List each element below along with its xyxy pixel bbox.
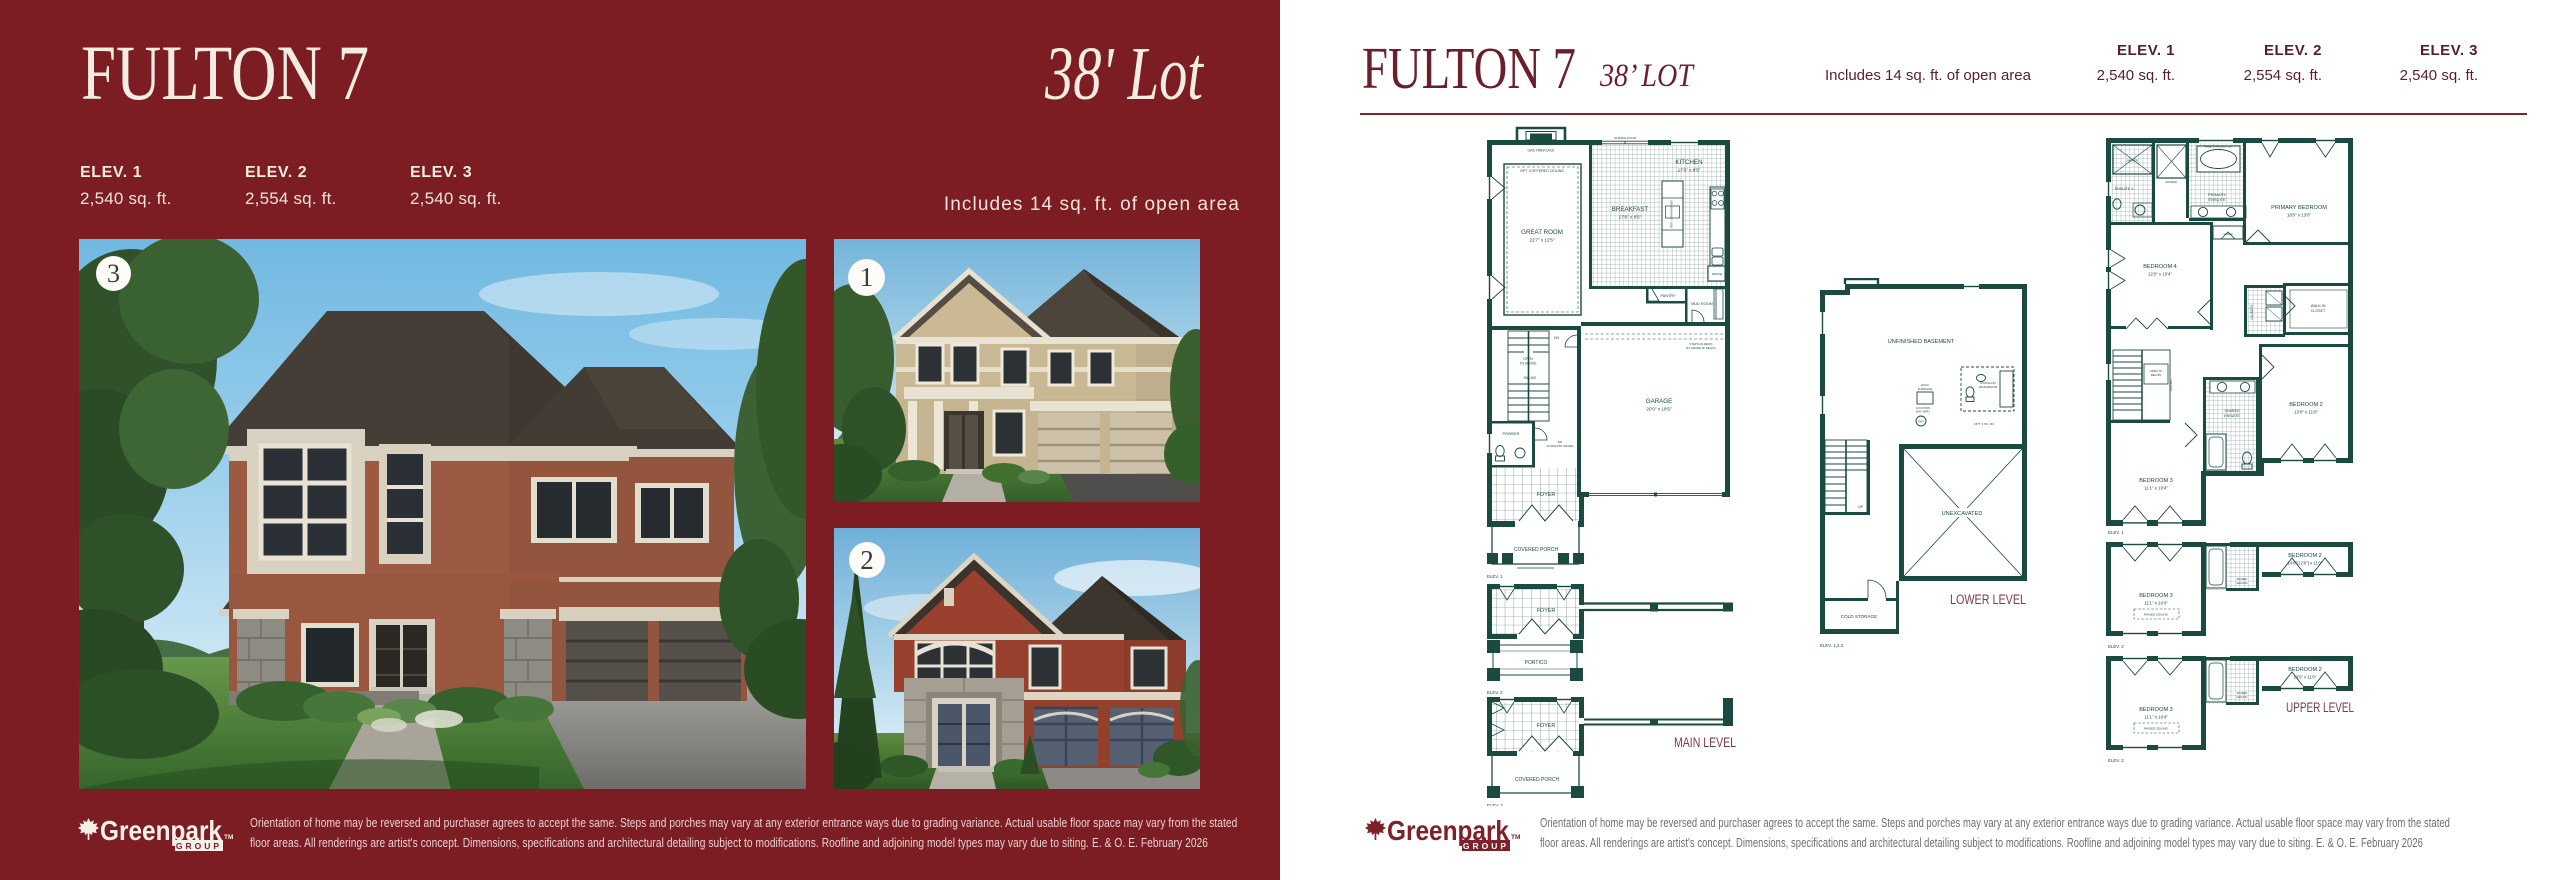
svg-text:MAIN LEVEL: MAIN LEVEL (1674, 735, 1736, 750)
svg-text:COVERED PORCH: COVERED PORCH (1515, 777, 1560, 783)
svg-text:38' Lot: 38' Lot (1044, 32, 1204, 110)
svg-text:DN: DN (1558, 440, 1562, 444)
svg-text:COVERED PORCH: COVERED PORCH (1514, 547, 1559, 553)
svg-text:FOYER: FOYER (1537, 492, 1556, 498)
svg-text:WALK-IN: WALK-IN (2311, 304, 2326, 308)
svg-text:OPEN: OPEN (1523, 357, 1533, 361)
svg-text:DN: DN (1554, 336, 1559, 340)
svg-text:UP: UP (1858, 505, 1864, 509)
svg-text:FULTON 7: FULTON 7 (81, 30, 369, 110)
svg-text:TM: TM (224, 834, 233, 841)
svg-text:17'6" x 8'5": 17'6" x 8'5" (1678, 168, 1701, 173)
svg-text:GROUP: GROUP (1463, 841, 1509, 851)
svg-text:GAS FIREPLACE: GAS FIREPLACE (1528, 149, 1556, 153)
svg-text:13'0" x 11'0": 13'0" x 11'0" (2294, 675, 2317, 680)
svg-text:BREAKFAST: BREAKFAST (1612, 206, 1649, 213)
svg-text:BY GRADE (IF REQ'D): BY GRADE (IF REQ'D) (1687, 346, 1716, 350)
svg-text:HWT: HWT (1918, 420, 1925, 424)
svg-text:UPPER LEVEL: UPPER LEVEL (2286, 700, 2354, 715)
svg-text:ENSUITE 4: ENSUITE 4 (2115, 187, 2134, 191)
svg-text:BEDROOM 4: BEDROOM 4 (2143, 264, 2177, 270)
svg-text:UNFINISHED BASEMENT: UNFINISHED BASEMENT (1888, 339, 1955, 345)
svg-text:ELEV. 1: ELEV. 1 (1487, 574, 1503, 579)
svg-text:TO ABOVE: TO ABOVE (1519, 362, 1537, 366)
svg-text:FURNACE: FURNACE (1918, 387, 1933, 391)
svg-text:BEDROOM 3: BEDROOM 3 (2139, 707, 2173, 713)
svg-text:11'1" x 10'4": 11'1" x 10'4" (2144, 715, 2168, 720)
svg-text:BEDROOM 2: BEDROOM 2 (2288, 667, 2322, 673)
svg-text:KITCHEN: KITCHEN (1675, 159, 1702, 166)
svg-text:38’ LOT: 38’ LOT (1599, 58, 1695, 92)
svg-text:MUD ROOM: MUD ROOM (1691, 302, 1713, 306)
svg-text:REF. | DISHWASHER: REF. | DISHWASHER (1670, 200, 1674, 227)
svg-text:CEILING: CEILING (2236, 695, 2247, 699)
svg-text:ELEV. 2: ELEV. 2 (2108, 644, 2124, 649)
svg-text:RAILING: RAILING (1524, 376, 1537, 380)
svg-text:GARAGE: GARAGE (1646, 398, 1672, 405)
svg-text:ELEV. 1: ELEV. 1 (2108, 530, 2124, 535)
svg-text:11'1" x 10'4": 11'1" x 10'4" (2144, 486, 2168, 491)
svg-text:13'0" x 11'0": 13'0" x 11'0" (2294, 410, 2318, 415)
svg-text:BEDROOM 3: BEDROOM 3 (2139, 478, 2173, 484)
svg-text:22'7" x 12'5": 22'7" x 12'5" (1529, 238, 1555, 243)
svg-text:TM: TM (1511, 834, 1520, 841)
svg-text:MAY VARY: MAY VARY (1916, 410, 1930, 414)
svg-text:RAILING: RAILING (2169, 379, 2173, 390)
svg-text:17'6" x 8'5": 17'6" x 8'5" (1619, 215, 1642, 220)
svg-text:CEILING: CEILING (2236, 581, 2247, 585)
svg-text:ELEV. 3: ELEV. 3 (1487, 803, 1503, 806)
svg-text:PANTRY: PANTRY (1660, 294, 1676, 298)
svg-text:FULTON 7: FULTON 7 (1362, 40, 1576, 100)
svg-text:LOWER LEVEL: LOWER LEVEL (1950, 592, 2026, 607)
svg-text:SHOWER: SHOWER (2165, 180, 2177, 184)
svg-text:FRIDGE: FRIDGE (1712, 272, 1723, 276)
svg-text:BEDROOM 2: BEDROOM 2 (2289, 402, 2323, 408)
svg-text:PRIMARY BEDROOM: PRIMARY BEDROOM (2271, 205, 2327, 211)
svg-text:POWDER: POWDER (1502, 432, 1519, 436)
svg-text:GROUP: GROUP (176, 841, 222, 851)
svg-text:CLOSET: CLOSET (2311, 309, 2326, 313)
svg-text:GREAT ROOM: GREAT ROOM (1521, 229, 1563, 236)
svg-text:14'8"(12'0") x 11'0": 14'8"(12'0") x 11'0" (2288, 561, 2323, 566)
svg-text:BEDROOM 3: BEDROOM 3 (2139, 593, 2173, 599)
svg-text:ELEV. 2: ELEV. 2 (1487, 690, 1503, 695)
svg-text:FOYER: FOYER (1537, 608, 1556, 614)
svg-text:11'1" x 10'4": 11'1" x 10'4" (2144, 601, 2168, 606)
svg-text:ELEV. 3: ELEV. 3 (2108, 758, 2124, 763)
svg-text:12'0" x 10'4": 12'0" x 10'4" (2148, 272, 2173, 277)
svg-text:RAISED CEILING: RAISED CEILING (2144, 727, 2169, 731)
svg-text:18'0" x 13'0": 18'0" x 13'0" (2287, 213, 2312, 218)
svg-text:(IF REQ'D BY GRADE): (IF REQ'D BY GRADE) (1547, 444, 1574, 448)
svg-text:BEDROOM 2: BEDROOM 2 (2288, 553, 2322, 559)
svg-text:FOYER: FOYER (1537, 723, 1556, 729)
svg-text:WASHROOM: WASHROOM (1979, 385, 1998, 389)
svg-text:PORTICO: PORTICO (1525, 660, 1548, 666)
svg-text:FREE STANDING TUB: FREE STANDING TUB (2205, 145, 2232, 149)
svg-text:OPT. COFFERED CEILING: OPT. COFFERED CEILING (1520, 169, 1564, 173)
svg-text:UNEXCAVATED: UNEXCAVATED (1942, 511, 1983, 517)
svg-text:ENSUITE: ENSUITE (2208, 197, 2226, 202)
svg-text:ENSUITE: ENSUITE (2224, 414, 2240, 418)
svg-text:ELEV. 1,2,3: ELEV. 1,2,3 (1820, 643, 1844, 648)
svg-text:RAISED CEILING: RAISED CEILING (2144, 613, 2169, 617)
svg-text:20'0" x 18'5": 20'0" x 18'5" (1646, 407, 1672, 412)
svg-text:SHOWER: SHOWER (2126, 159, 2138, 163)
svg-text:OPT. 3 PC. R/I: OPT. 3 PC. R/I (1974, 422, 1994, 426)
svg-text:COLD STORAGE: COLD STORAGE (1841, 614, 1877, 619)
svg-text:SLIDING DOOR: SLIDING DOOR (1614, 136, 1637, 140)
svg-text:SHARED: SHARED (2225, 409, 2240, 413)
svg-text:LAUNDRY: LAUNDRY (2250, 304, 2254, 320)
svg-text:BELOW: BELOW (2151, 373, 2161, 377)
